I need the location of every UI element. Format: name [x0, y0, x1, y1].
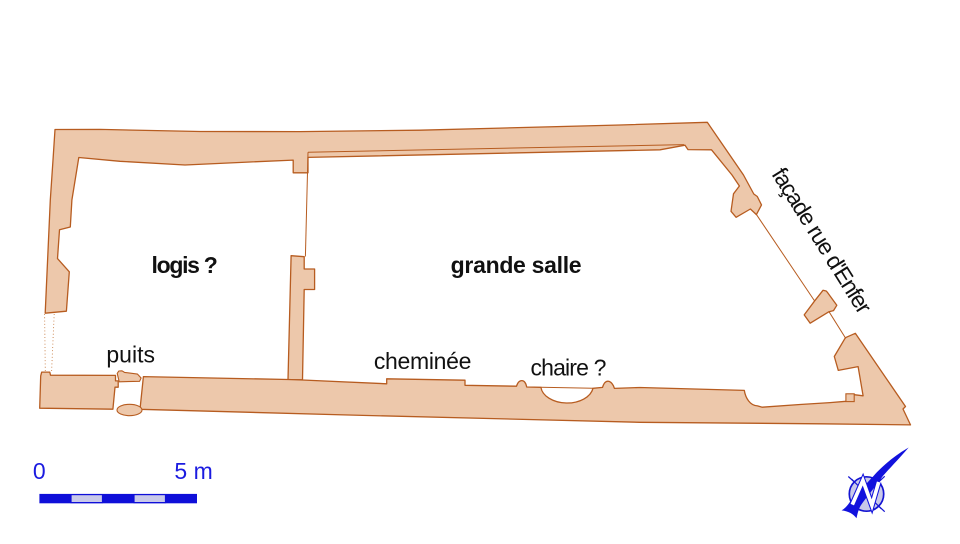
- svg-text:5 m: 5 m: [174, 458, 212, 484]
- svg-text:puits: puits: [106, 342, 155, 368]
- svg-text:logis ?: logis ?: [151, 252, 216, 278]
- svg-text:cheminée: cheminée: [374, 348, 471, 374]
- svg-text:grande salle: grande salle: [451, 252, 582, 278]
- svg-text:0: 0: [33, 458, 46, 484]
- svg-text:chaire ?: chaire ?: [530, 354, 605, 380]
